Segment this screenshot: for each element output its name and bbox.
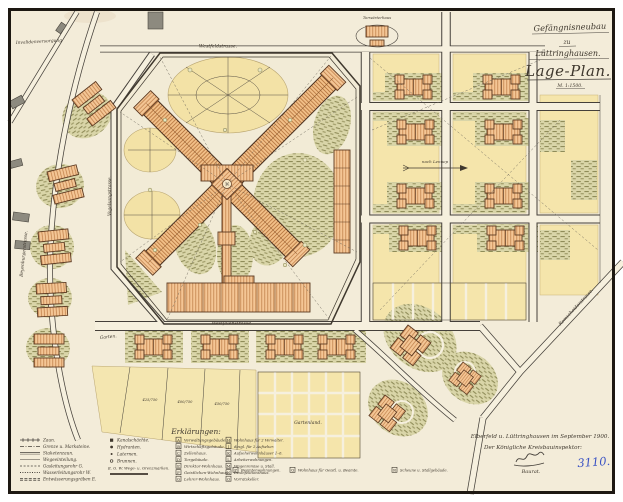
- legend-key: M: [227, 463, 231, 468]
- legend-key: D: [177, 457, 180, 462]
- legend-item: Arbeiterwohnungen.: [233, 458, 273, 462]
- site-plan-drawing: Gefängnisneubau zu Lüttringhausen. Lage-…: [0, 0, 623, 502]
- legend-item: Gasleitungsrohr G.: [43, 464, 83, 469]
- legend-item: Wegeeinteilung.: [43, 457, 77, 462]
- legend-item: Beamtenwohnungen.: [240, 468, 281, 472]
- place-date: Elberfeld u. Lüttringhausen im September…: [470, 434, 610, 440]
- legend-key: Q: [291, 467, 294, 472]
- plot-number: 450/750: [214, 402, 231, 406]
- legend-item: Hydranten.: [116, 445, 141, 450]
- title-line2: zu: [562, 39, 570, 46]
- stamp-number: 3110.: [577, 454, 611, 470]
- legend-item: Verwaltungsgebäude.: [184, 437, 227, 442]
- plot-number: 400/750: [177, 400, 194, 404]
- legend-item: Wasserleitungsrohr W.: [43, 470, 91, 475]
- legend-item: Direktor-Wohnhaus.: [183, 463, 223, 468]
- east-workshop-building: [334, 150, 350, 253]
- legend-item: Scheune u. Stallgebäude.: [400, 468, 448, 472]
- legend-key: E: [177, 463, 180, 468]
- legend-key: B: [177, 444, 180, 449]
- legend-key: K: [227, 450, 230, 455]
- legend-item: E. G. W. Wege- u. Grenzmarken.: [107, 466, 169, 471]
- legend-key: G: [177, 476, 180, 481]
- legend-key: A: [176, 437, 180, 442]
- office-line: Der Königliche Kreisbauinspektor:: [483, 445, 582, 451]
- legend-item: Torgebäude.: [184, 457, 209, 462]
- legend-item: Geistlichen-Wohnhaus.: [184, 470, 229, 475]
- legend-item: Aufseherwohnhäuser 1–6.: [233, 451, 283, 455]
- legend-item: Wirtschaftsgebäude.: [184, 444, 225, 449]
- legend-key: O: [227, 476, 230, 481]
- legend-key: P: [234, 467, 237, 472]
- legend-item: Kanalschächte.: [116, 438, 149, 443]
- legend-item: Laternen.: [116, 452, 138, 457]
- legend-item: Staketenzaun.: [43, 451, 73, 456]
- bottom-street-label: Westfalenstrasse.: [212, 321, 253, 327]
- top-street-label: Westfeldstrasse.: [199, 44, 238, 50]
- legend-item: Vorratskeller.: [234, 477, 259, 481]
- scanned-plan-sheet: Gefängnisneubau zu Lüttringhausen. Lage-…: [0, 0, 623, 502]
- legend-item: Entwässerungsgräben E.: [42, 477, 96, 482]
- scale-note: M. 1:1500.: [556, 83, 583, 89]
- legend-item: Brunnen.: [116, 459, 137, 464]
- legend-item: Lehrer-Wohnhaus.: [183, 476, 220, 481]
- plot-number: 425/750: [142, 398, 159, 402]
- legend-item: desgl. für 2 Aufseher.: [234, 445, 274, 449]
- legend-key: C: [177, 450, 180, 455]
- title-main: Lage-Plan.: [524, 62, 611, 80]
- legend-item: Grenze u. Marksteine.: [43, 444, 90, 449]
- legend-heading: Erklärungen:: [170, 427, 221, 436]
- legend-item: Wohnhaus für Geistl. u. Beamte.: [298, 468, 359, 472]
- legend-item: Zellenhaus.: [183, 450, 207, 455]
- legend-key: R: [393, 467, 396, 472]
- gatehouse-label: Torwärterhaus: [363, 15, 391, 20]
- arrow-label: nach Lennep: [422, 159, 449, 164]
- field-label: Gartenland.: [294, 420, 322, 426]
- title-block: Gefängnisneubau zu Lüttringhausen. Lage-…: [524, 21, 611, 89]
- legend-item: Wohnhaus für 2 Verwalter.: [234, 438, 284, 442]
- signature-rank: Baurat.: [521, 469, 541, 475]
- west-wall-street-label: Vogelsangstrasse.: [108, 176, 113, 216]
- title-line3: Lüttringhausen.: [534, 49, 600, 58]
- legend-item: Zaun.: [42, 438, 55, 443]
- legend-key: F: [177, 470, 180, 475]
